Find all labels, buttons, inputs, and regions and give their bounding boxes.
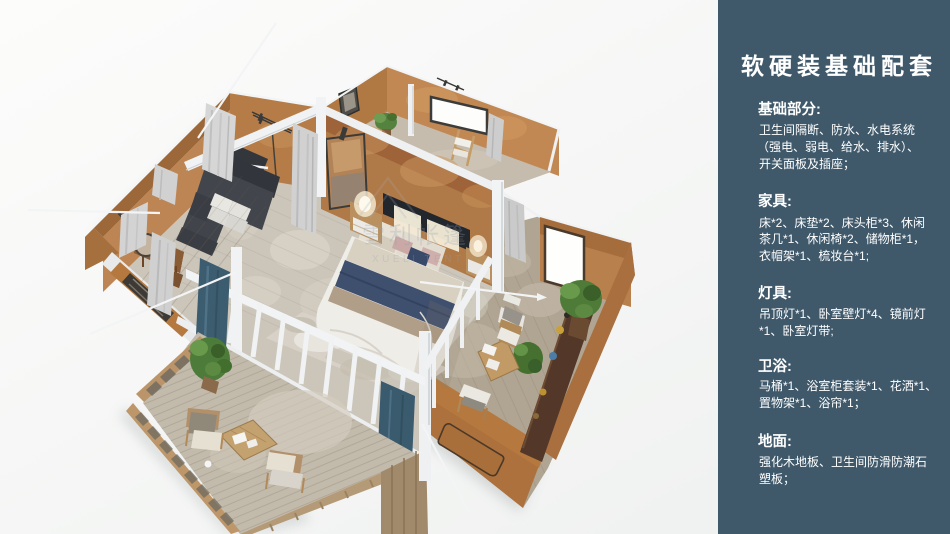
svg-text:雪利帐篷: 雪利帐篷: [362, 222, 470, 248]
svg-text:XUELI TENT: XUELI TENT: [372, 254, 465, 265]
